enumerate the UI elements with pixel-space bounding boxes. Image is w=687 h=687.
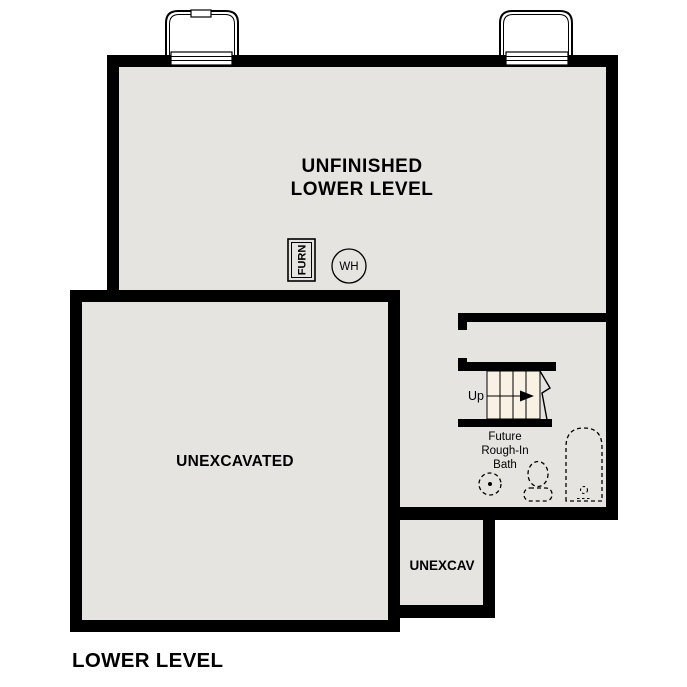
furnace-label: FURN	[297, 245, 309, 276]
left-well-notch	[191, 10, 211, 17]
floor-drain-center-dot	[488, 482, 492, 486]
main-room-label-line1: UNFINISHED	[301, 156, 422, 177]
unexcavated-left-wall	[70, 290, 82, 632]
stair-up-label: Up	[468, 389, 484, 403]
future-bath-label-line2: Rough-In	[481, 445, 528, 457]
left-well-inner-outline	[170, 15, 235, 56]
floor-areas	[82, 67, 606, 620]
main-left-exterior-wall	[107, 55, 119, 302]
plan-title: LOWER LEVEL	[72, 649, 223, 672]
right-well-outer-outline	[500, 11, 572, 55]
unexcavated-top-wall	[70, 290, 400, 302]
unexcavated-bottom-wall	[70, 620, 400, 632]
floor-plan-drawing: FURN WH UNFINISHED LOWER LEVEL UNEXCAVAT…	[0, 0, 687, 687]
right-exterior-wall	[606, 55, 618, 520]
future-bath-label-line1: Future	[488, 431, 521, 443]
unexcavated-label: UNEXCAVATED	[176, 453, 294, 470]
stair-bottom-wall	[458, 419, 552, 427]
main-room-label-line2: LOWER LEVEL	[291, 179, 434, 200]
left-well-outer-outline	[166, 11, 238, 55]
unexcav-small-bottom-wall	[388, 605, 495, 618]
unexcav-small-label: UNEXCAV	[409, 558, 474, 573]
stair-upper-wall-endcap	[458, 313, 467, 330]
right-well-inner-outline	[504, 15, 569, 56]
left-window-well	[166, 10, 238, 65]
water-heater-label: WH	[339, 261, 358, 273]
unexcav-small-right-wall	[483, 507, 495, 618]
right-egress-window	[506, 52, 568, 65]
future-bath-label-line3: Bath	[493, 459, 517, 471]
stair-lower-wall	[458, 362, 556, 371]
left-egress-window	[171, 52, 232, 65]
stair-lower-wall-endcap	[458, 358, 467, 371]
unexcavated-right-wall	[388, 302, 400, 620]
bath-bottom-exterior-wall	[388, 507, 618, 520]
stair-upper-wall	[458, 313, 607, 322]
right-window-well	[500, 11, 572, 65]
floor-plan-page: FURN WH UNFINISHED LOWER LEVEL UNEXCAVAT…	[0, 0, 687, 687]
